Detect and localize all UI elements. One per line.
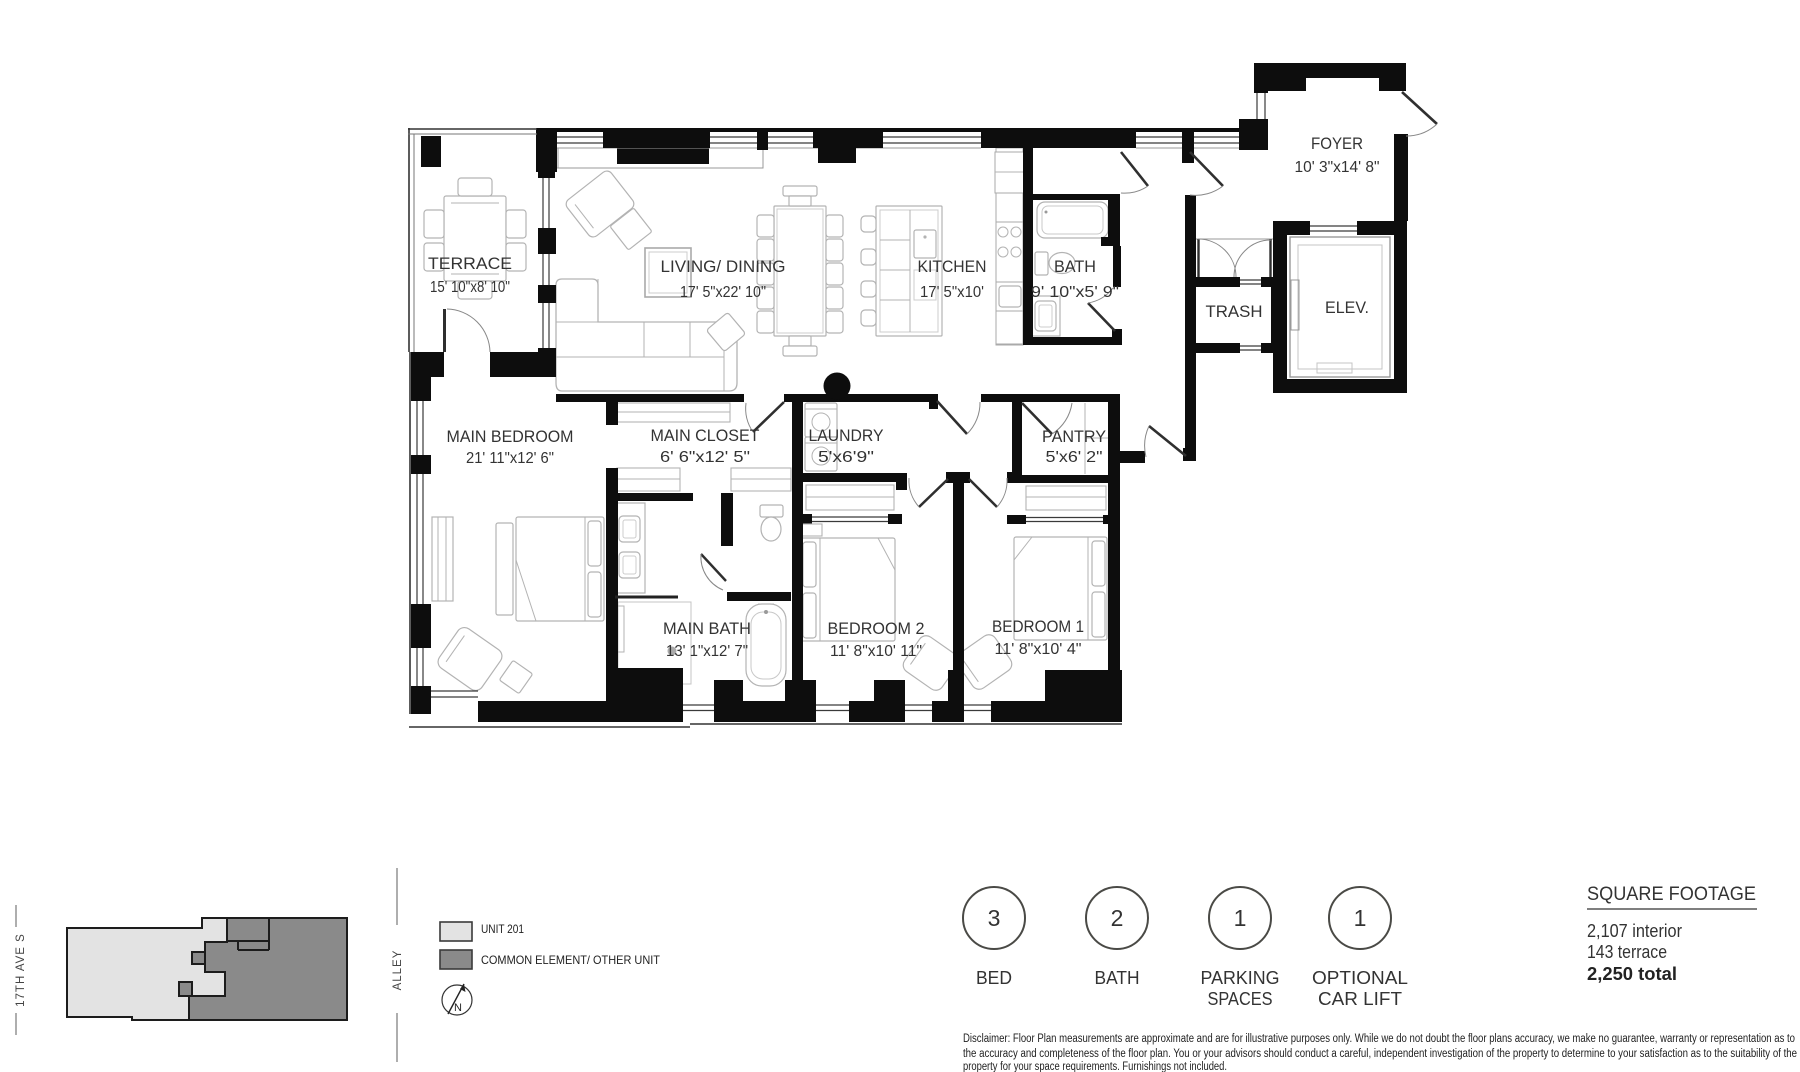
svg-text:9' 10"x5' 9": 9' 10"x5' 9" bbox=[1031, 284, 1119, 301]
svg-text:MAIN BEDROOM: MAIN BEDROOM bbox=[447, 427, 574, 446]
svg-text:17' 5"x10': 17' 5"x10' bbox=[920, 284, 984, 301]
svg-text:CAR LIFT: CAR LIFT bbox=[1318, 989, 1402, 1009]
svg-text:LIVING/ DINING: LIVING/ DINING bbox=[661, 257, 786, 276]
svg-text:UNIT 201: UNIT 201 bbox=[481, 922, 524, 936]
svg-text:Disclaimer: Floor Plan measure: Disclaimer: Floor Plan measurements are … bbox=[963, 1033, 1795, 1045]
svg-text:LAUNDRY: LAUNDRY bbox=[809, 426, 884, 445]
svg-text:2,250 total: 2,250 total bbox=[1587, 964, 1677, 984]
svg-text:10' 3"x14' 8": 10' 3"x14' 8" bbox=[1295, 159, 1380, 176]
svg-text:2: 2 bbox=[1111, 905, 1124, 931]
svg-text:BEDROOM 2: BEDROOM 2 bbox=[828, 619, 925, 638]
svg-text:COMMON ELEMENT/ OTHER UNIT: COMMON ELEMENT/ OTHER UNIT bbox=[481, 953, 661, 967]
svg-text:ELEV.: ELEV. bbox=[1325, 298, 1369, 317]
svg-text:BED: BED bbox=[976, 968, 1012, 988]
svg-text:BATH: BATH bbox=[1054, 257, 1096, 276]
svg-text:property for your space requir: property for your space requirements. Fu… bbox=[963, 1061, 1227, 1072]
svg-text:1: 1 bbox=[1234, 905, 1247, 931]
svg-text:the accuracy and completeness: the accuracy and completeness of the flo… bbox=[963, 1048, 1797, 1060]
svg-text:SPACES: SPACES bbox=[1208, 989, 1273, 1009]
svg-text:11' 8"x10' 4": 11' 8"x10' 4" bbox=[995, 641, 1082, 658]
svg-text:TERRACE: TERRACE bbox=[428, 254, 512, 273]
svg-text:1: 1 bbox=[1354, 905, 1367, 931]
svg-text:13' 1"x12' 7": 13' 1"x12' 7" bbox=[666, 643, 748, 660]
svg-text:BATH: BATH bbox=[1095, 968, 1140, 988]
svg-text:MAIN BATH: MAIN BATH bbox=[663, 619, 751, 638]
svg-text:5'x6' 2": 5'x6' 2" bbox=[1046, 449, 1103, 466]
svg-text:BEDROOM 1: BEDROOM 1 bbox=[992, 617, 1084, 636]
svg-text:21' 11"x12' 6": 21' 11"x12' 6" bbox=[466, 450, 554, 467]
svg-text:N: N bbox=[454, 1002, 462, 1014]
svg-text:KITCHEN: KITCHEN bbox=[918, 257, 987, 276]
svg-text:MAIN CLOSET: MAIN CLOSET bbox=[651, 426, 760, 445]
svg-text:11' 8"x10' 11": 11' 8"x10' 11" bbox=[830, 643, 922, 660]
svg-text:143 terrace: 143 terrace bbox=[1587, 942, 1667, 962]
svg-text:3: 3 bbox=[988, 905, 1001, 931]
svg-text:TRASH: TRASH bbox=[1206, 302, 1263, 321]
svg-text:6' 6"x12' 5": 6' 6"x12' 5" bbox=[660, 449, 750, 466]
svg-text:2,107 interior: 2,107 interior bbox=[1587, 921, 1682, 941]
svg-text:SQUARE FOOTAGE: SQUARE FOOTAGE bbox=[1587, 884, 1756, 905]
svg-text:5'x6'9": 5'x6'9" bbox=[818, 449, 874, 466]
svg-text:17' 5"x22' 10": 17' 5"x22' 10" bbox=[680, 284, 766, 301]
svg-text:17TH AVE S: 17TH AVE S bbox=[15, 933, 27, 1007]
svg-text:PARKING: PARKING bbox=[1201, 968, 1280, 988]
svg-text:OPTIONAL: OPTIONAL bbox=[1312, 968, 1408, 988]
svg-text:PANTRY: PANTRY bbox=[1042, 427, 1106, 446]
svg-text:FOYER: FOYER bbox=[1311, 134, 1363, 153]
svg-text:15' 10"x8' 10": 15' 10"x8' 10" bbox=[430, 279, 510, 296]
svg-text:ALLEY: ALLEY bbox=[392, 950, 404, 991]
